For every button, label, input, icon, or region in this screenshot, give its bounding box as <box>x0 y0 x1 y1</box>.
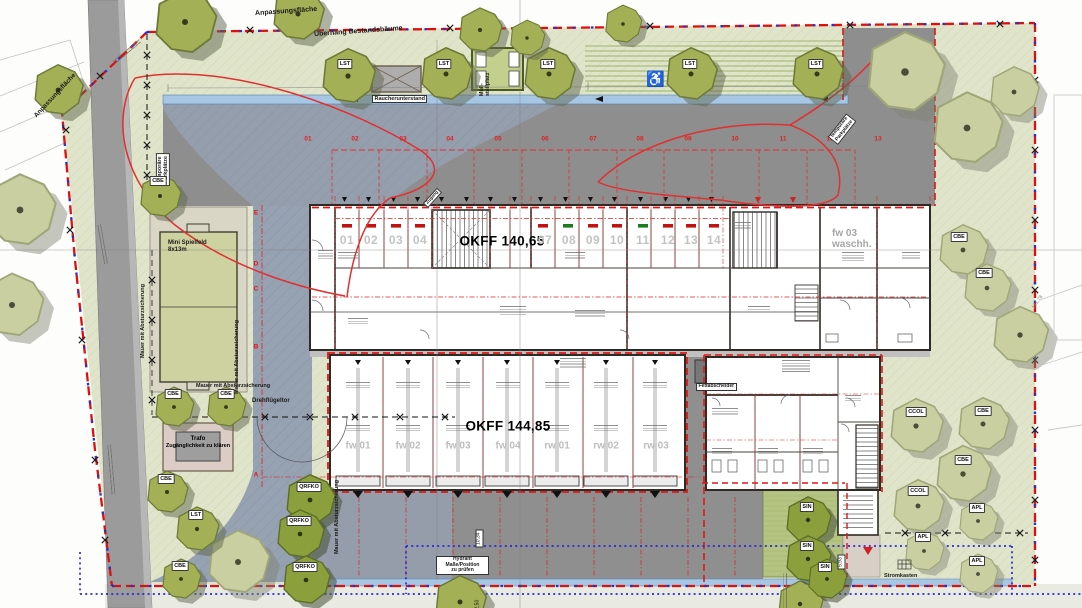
garage-bay-number: 12 <box>661 233 675 247</box>
tree-label-lst: LST <box>188 510 203 520</box>
annotation-text <box>842 252 864 261</box>
tree-label-lst: LST <box>682 59 697 69</box>
tree-label-lst: LST <box>337 59 352 69</box>
annotation-text <box>348 318 368 324</box>
label-stromkasten: Stromkasten <box>884 573 917 579</box>
annotation-text <box>318 250 333 259</box>
parking-stall-number: 09 <box>684 136 691 143</box>
annotation-text <box>748 306 770 313</box>
hall-bay-label: rw 01 <box>544 441 570 452</box>
parking-stall-number: 04 <box>446 136 453 143</box>
tree-label-cbe: CBE <box>165 389 182 399</box>
annotation-text <box>346 382 370 388</box>
garage-bay-number: 11 <box>636 233 650 247</box>
garage-elevation-label: OKFF 140,65 <box>459 234 544 249</box>
parking-stall-number: 07 <box>589 136 596 143</box>
tree-label-lst: LST <box>540 59 555 69</box>
annotation-text <box>545 382 569 388</box>
parking-stall-number: 10 <box>731 136 738 143</box>
garage-bay-number: 01 <box>340 233 354 247</box>
tree-label-ccol: CCOL <box>908 486 929 496</box>
annotation-text <box>396 382 420 388</box>
parking-stall-number: 05 <box>494 136 501 143</box>
tree-label-cbe: CBE <box>172 561 189 571</box>
annotation-text <box>758 448 778 454</box>
label-mini-spielfeld: Mini Spielfeld 8x13m <box>168 240 207 253</box>
tree-label-sin: SIN <box>800 541 814 551</box>
garage-bay-number: 02 <box>364 233 378 247</box>
annotation-text <box>902 252 920 259</box>
annotation-text <box>396 425 420 431</box>
hall-elevation-label: OKFF 144,85 <box>465 419 550 434</box>
plan-graphics <box>0 0 1082 608</box>
dimension-10-34: 10,34 <box>476 530 484 548</box>
tree-label-apl: APL <box>915 532 931 542</box>
parking-stall-number: 08 <box>636 136 643 143</box>
annotation-text <box>735 222 751 230</box>
label-fettabscheider: Fettabscheider <box>696 383 737 391</box>
hall-bay-label: fw 01 <box>345 441 370 452</box>
tree-label-apl: APL <box>969 503 985 513</box>
annotation-text <box>712 448 732 454</box>
tree-label-cbe: CBE <box>218 389 235 399</box>
annotation-text <box>594 425 618 431</box>
hall-bay-label: rw 03 <box>643 441 669 452</box>
hall-bay-label: fw 03 <box>445 441 470 452</box>
garage-bay-number: 08 <box>562 233 576 247</box>
parking-stall-number: 03 <box>399 136 406 143</box>
site-plan-drawing: Anpassungsfläche Überhang Bestandsbäume … <box>0 0 1082 608</box>
garage-bay-number: 09 <box>586 233 600 247</box>
garage-bay-number: 04 <box>413 233 427 247</box>
tree-label-qrfko: QRFKO <box>287 516 312 526</box>
garage-bay-number: 14 <box>707 233 721 247</box>
label-muellstellplatz: Müll- stellplatz <box>479 73 491 97</box>
tree-label-ccol: CCOL <box>906 407 927 417</box>
annotation-text <box>594 382 618 388</box>
garage-bay-number: 03 <box>389 233 403 247</box>
garage-bay-number: 10 <box>610 233 624 247</box>
annotation-text <box>782 573 787 608</box>
mini-spielfeld <box>150 207 247 392</box>
annotation-text <box>712 408 738 416</box>
annotation-text <box>565 252 585 259</box>
dimension-5-93: 5,93 <box>838 555 846 570</box>
annotation-text <box>782 360 810 372</box>
tree-label-sin: SIN <box>800 502 814 512</box>
annotation-text <box>575 310 605 317</box>
tree-label-lst: LST <box>436 59 451 69</box>
label-mauer-1: Mauer mit Absturzsicherung <box>140 284 146 358</box>
hall-bay-label: rw 02 <box>593 441 619 452</box>
tree-label-cbe: CBE <box>955 455 972 465</box>
label-hydrant: Hydrant Maße/Position zu prüfen <box>436 556 489 575</box>
label-wash-hall: fw 03 waschh. <box>832 228 871 250</box>
annotation-text <box>560 358 586 368</box>
parking-stall-number: 13 <box>874 136 881 143</box>
label-mauer-4: Mauer mit Absturzsicherung <box>334 480 340 554</box>
grid-letter-a: A <box>254 472 259 479</box>
tree-label-qrfko: QRFKO <box>297 482 322 492</box>
annotation-text <box>496 382 520 388</box>
annotation-text <box>500 306 526 315</box>
tree-label-cbe: CBE <box>976 268 993 278</box>
tree-label-qrfko: QRFKO <box>293 562 318 572</box>
parking-stall-number: 01 <box>304 136 311 143</box>
annotation-text <box>845 395 861 401</box>
grid-letter-c: C <box>254 286 259 293</box>
dimension-2-50: 2,50 <box>476 600 482 608</box>
tree-label-cbe: CBE <box>975 406 992 416</box>
annotation-text <box>643 425 667 431</box>
tree-label-cbe: CBE <box>150 176 167 186</box>
parking-stall-number: 06 <box>541 136 548 143</box>
tree-label-apl: APL <box>969 556 985 566</box>
parking-stall-number: 11 <box>780 136 787 143</box>
grid-letter-b: B <box>254 344 259 351</box>
label-raucherunterstand: Raucherunterstand <box>372 95 427 103</box>
tree-label-cbe: CBE <box>951 232 968 242</box>
tree-label-lst: LST <box>808 59 823 69</box>
hall-bay-label: fw 02 <box>395 441 420 452</box>
parking-stall-number: 02 <box>351 136 358 143</box>
annotation-text <box>446 382 470 388</box>
neighbor-structures <box>1040 95 1082 430</box>
accessible-parking-icon: ♿ <box>646 72 665 89</box>
annotation-text <box>803 448 823 454</box>
grid-letter-e: E <box>254 210 258 217</box>
tree-label-sin: SIN <box>818 562 832 572</box>
annotation-text <box>346 425 370 431</box>
garage-bay-number: 07 <box>538 233 552 247</box>
annotation-text <box>338 252 358 259</box>
garage-bay-number: 13 <box>684 233 698 247</box>
label-drehfluegeltor: Drehflügeltor <box>252 398 290 405</box>
annotation-text <box>643 382 667 388</box>
grid-letter-d: D <box>254 261 259 268</box>
tree-label-cbe: CBE <box>158 474 175 484</box>
label-trafo: Trafo Zugänglichkeit zu klären <box>163 436 233 449</box>
hall-bay-label: fw 04 <box>495 441 520 452</box>
